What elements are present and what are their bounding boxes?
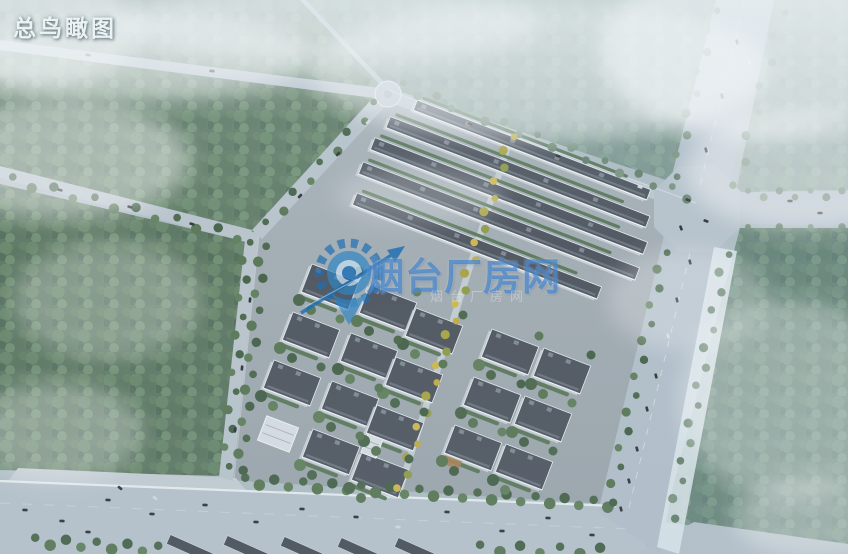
scene-graphic xyxy=(0,0,848,554)
cool-tint-overlay xyxy=(0,0,848,554)
view-title-label: 总鸟瞰图 xyxy=(13,9,117,43)
aerial-rendering-image: 总鸟瞰图 烟台厂房网 烟台厂房网 xyxy=(0,0,848,554)
